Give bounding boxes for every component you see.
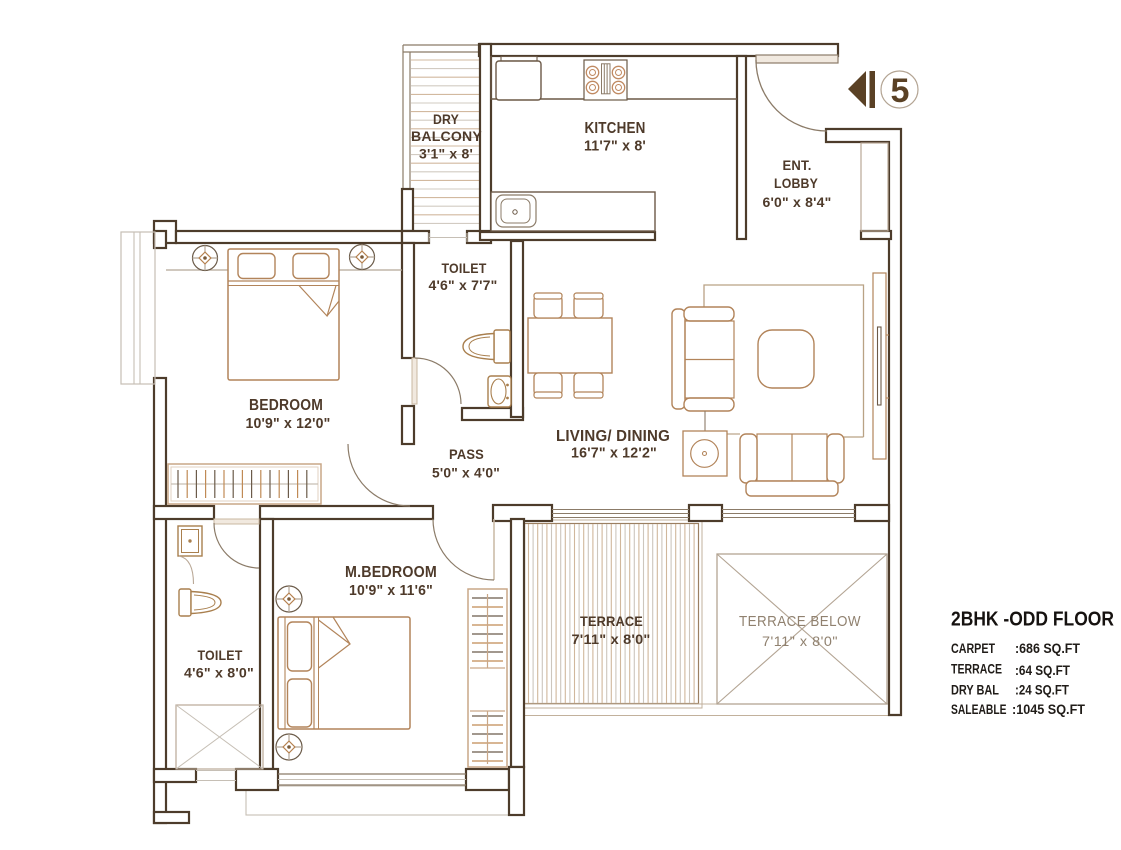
svg-text:16'7" x 12'2": 16'7" x 12'2" — [571, 446, 657, 462]
svg-text:BALCONY: BALCONY — [411, 128, 482, 144]
svg-text:4'6" x 8'0": 4'6" x 8'0" — [184, 666, 254, 681]
svg-text:ENT.: ENT. — [783, 157, 812, 173]
svg-text::24 SQ.FT: :24 SQ.FT — [1015, 683, 1070, 698]
svg-text:10'9" x 12'0": 10'9" x 12'0" — [246, 416, 331, 432]
svg-text:10'9" x 11'6": 10'9" x 11'6" — [349, 583, 433, 599]
svg-text:7'11" x 8'0": 7'11" x 8'0" — [572, 632, 651, 647]
svg-text:DRY: DRY — [433, 111, 459, 127]
svg-text:5'0" x 4'0": 5'0" x 4'0" — [432, 466, 500, 481]
svg-text:11'7" x 8': 11'7" x 8' — [584, 139, 646, 155]
svg-text:6'0" x 8'4": 6'0" x 8'4" — [763, 195, 832, 210]
svg-text::686 SQ.FT: :686 SQ.FT — [1015, 641, 1081, 656]
svg-text:5: 5 — [891, 72, 910, 110]
svg-text::64 SQ.FT: :64 SQ.FT — [1015, 663, 1071, 678]
svg-text:TOILET: TOILET — [442, 260, 487, 276]
svg-text:PASS: PASS — [449, 446, 484, 462]
svg-text:TERRACE: TERRACE — [580, 613, 643, 629]
svg-text:BEDROOM: BEDROOM — [249, 397, 323, 414]
svg-text:CARPET: CARPET — [951, 641, 996, 656]
svg-text:7'11" x 8'0": 7'11" x 8'0" — [762, 633, 838, 649]
svg-text::1045 SQ.FT: :1045 SQ.FT — [1012, 702, 1086, 717]
svg-text:TOILET: TOILET — [198, 647, 243, 663]
svg-text:SALEABLE: SALEABLE — [951, 702, 1007, 717]
svg-text:LOBBY: LOBBY — [774, 175, 818, 191]
svg-text:TERRACE BELOW: TERRACE BELOW — [739, 613, 861, 630]
svg-text:3'1" x 8': 3'1" x 8' — [419, 147, 473, 162]
svg-text:2BHK -ODD FLOOR: 2BHK -ODD FLOOR — [951, 609, 1114, 631]
svg-text:DRY BAL: DRY BAL — [951, 683, 999, 698]
svg-text:TERRACE: TERRACE — [951, 662, 1002, 677]
svg-text:4'6" x 7'7": 4'6" x 7'7" — [429, 278, 498, 293]
svg-text:M.BEDROOM: M.BEDROOM — [345, 564, 437, 581]
svg-text:LIVING/ DINING: LIVING/ DINING — [556, 428, 670, 445]
svg-text:KITCHEN: KITCHEN — [585, 120, 646, 137]
